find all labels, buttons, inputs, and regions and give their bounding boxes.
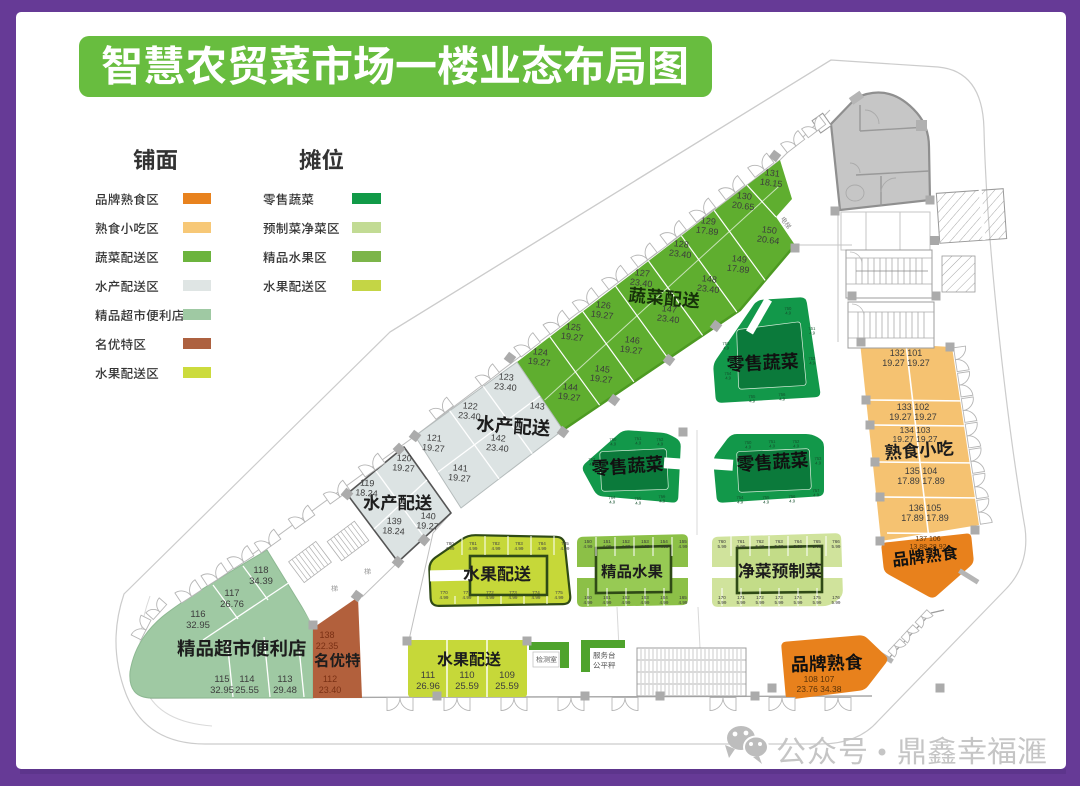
svg-text:5.99: 5.99 <box>794 544 803 549</box>
svg-text:4.99: 4.99 <box>463 595 472 600</box>
svg-text:4.99: 4.99 <box>486 595 495 600</box>
svg-text:4.99: 4.99 <box>679 600 688 605</box>
svg-text:114: 114 <box>239 674 254 685</box>
svg-text:5.99: 5.99 <box>832 544 841 549</box>
svg-text:4.9: 4.9 <box>723 345 730 350</box>
svg-text:4.99: 4.99 <box>603 600 612 605</box>
svg-text:108 107: 108 107 <box>804 674 835 684</box>
svg-text:4.9: 4.9 <box>609 499 616 504</box>
svg-text:19.27 19.27: 19.27 19.27 <box>889 412 937 422</box>
svg-text:34.39: 34.39 <box>249 576 273 587</box>
svg-text:4.99: 4.99 <box>622 544 631 549</box>
svg-text:5.99: 5.99 <box>813 600 822 605</box>
svg-text:112: 112 <box>323 674 337 684</box>
svg-text:110: 110 <box>459 670 474 681</box>
svg-text:17.89 17.89: 17.89 17.89 <box>897 476 945 486</box>
svg-text:23.40: 23.40 <box>458 410 481 422</box>
svg-text:115: 115 <box>214 674 229 685</box>
svg-text:26.96: 26.96 <box>416 681 440 692</box>
svg-text:135 104: 135 104 <box>905 466 938 476</box>
svg-text:25.55: 25.55 <box>235 685 259 696</box>
svg-text:17.89 17.89: 17.89 17.89 <box>901 513 949 523</box>
svg-text:111: 111 <box>421 670 435 681</box>
svg-text:4.99: 4.99 <box>660 544 669 549</box>
svg-text:4.99: 4.99 <box>532 595 541 600</box>
svg-text:4.9: 4.9 <box>779 396 786 401</box>
svg-text:4.99: 4.99 <box>469 546 478 551</box>
svg-text:4.9: 4.9 <box>785 310 792 315</box>
svg-text:4.99: 4.99 <box>555 595 564 600</box>
svg-text:26.76: 26.76 <box>220 599 244 610</box>
svg-text:4.99: 4.99 <box>679 544 688 549</box>
svg-text:4.99: 4.99 <box>492 546 501 551</box>
svg-text:5.99: 5.99 <box>737 544 746 549</box>
svg-text:4.9: 4.9 <box>659 498 666 503</box>
svg-text:4.99: 4.99 <box>584 600 593 605</box>
svg-text:4.99: 4.99 <box>603 544 612 549</box>
svg-text:4.9: 4.9 <box>657 441 664 446</box>
svg-text:4.99: 4.99 <box>561 546 570 551</box>
svg-text:132 101: 132 101 <box>890 348 923 358</box>
svg-text:4.9: 4.9 <box>725 375 732 380</box>
svg-text:117: 117 <box>224 588 239 599</box>
svg-text:5.99: 5.99 <box>794 600 803 605</box>
svg-text:19.27: 19.27 <box>448 472 471 484</box>
svg-text:4.9: 4.9 <box>749 398 756 403</box>
svg-text:4.9: 4.9 <box>745 444 752 449</box>
svg-text:5.99: 5.99 <box>718 600 727 605</box>
svg-text:5.99: 5.99 <box>813 544 822 549</box>
svg-text:23.76 34.38: 23.76 34.38 <box>797 684 842 694</box>
svg-text:19.27: 19.27 <box>392 462 415 474</box>
svg-text:133 102: 133 102 <box>897 402 930 412</box>
svg-text:19.27 19.27: 19.27 19.27 <box>893 434 938 444</box>
svg-text:5.99: 5.99 <box>775 600 784 605</box>
svg-text:5.99: 5.99 <box>832 600 841 605</box>
svg-text:23.40: 23.40 <box>486 442 509 454</box>
svg-text:5.99: 5.99 <box>756 544 765 549</box>
svg-text:5.99: 5.99 <box>718 544 727 549</box>
svg-text:4.99: 4.99 <box>440 595 449 600</box>
svg-text:22.35: 22.35 <box>316 641 339 651</box>
svg-text:4.9: 4.9 <box>635 440 642 445</box>
svg-text:5.99: 5.99 <box>737 600 746 605</box>
svg-text:25.59: 25.59 <box>495 681 519 692</box>
svg-text:4.9: 4.9 <box>809 360 816 365</box>
svg-text:4.99: 4.99 <box>515 546 524 551</box>
svg-text:4.9: 4.9 <box>737 499 744 504</box>
svg-text:19.27: 19.27 <box>422 442 445 454</box>
svg-text:116: 116 <box>190 609 205 620</box>
svg-text:4.9: 4.9 <box>789 498 796 503</box>
svg-text:4.99: 4.99 <box>584 544 593 549</box>
svg-text:143: 143 <box>529 400 545 411</box>
svg-text:138: 138 <box>319 630 334 640</box>
svg-text:4.9: 4.9 <box>769 443 776 448</box>
svg-text:4.99: 4.99 <box>538 546 547 551</box>
svg-text:5.99: 5.99 <box>775 544 784 549</box>
svg-text:29.48: 29.48 <box>273 685 297 696</box>
svg-text:109: 109 <box>499 670 515 681</box>
svg-text:4.9: 4.9 <box>610 441 617 446</box>
svg-text:113: 113 <box>277 674 292 685</box>
svg-text:19.27: 19.27 <box>416 520 439 532</box>
svg-text:4.9: 4.9 <box>635 500 642 505</box>
svg-text:4.9: 4.9 <box>809 330 816 335</box>
svg-text:4.99: 4.99 <box>641 544 650 549</box>
svg-text:4.99: 4.99 <box>509 595 518 600</box>
svg-text:4.9: 4.9 <box>815 460 822 465</box>
svg-text:5.99: 5.99 <box>756 600 765 605</box>
svg-text:18.24: 18.24 <box>355 487 378 499</box>
svg-text:4.99: 4.99 <box>660 600 669 605</box>
svg-text:4.9: 4.9 <box>793 443 800 448</box>
svg-text:136 105: 136 105 <box>909 503 942 513</box>
svg-text:19.27 19.27: 19.27 19.27 <box>882 358 930 368</box>
svg-text:4.9: 4.9 <box>763 499 770 504</box>
svg-text:4.99: 4.99 <box>622 600 631 605</box>
svg-text:118: 118 <box>253 565 268 576</box>
svg-text:18.24: 18.24 <box>382 525 405 537</box>
svg-text:32.95: 32.95 <box>186 620 210 631</box>
svg-text:32.95: 32.95 <box>210 685 234 696</box>
svg-text:4.9: 4.9 <box>813 492 820 497</box>
svg-text:25.59: 25.59 <box>455 681 479 692</box>
svg-text:23.40: 23.40 <box>494 381 517 393</box>
svg-text:137 106: 137 106 <box>915 536 940 543</box>
svg-text:4.99: 4.99 <box>446 546 455 551</box>
svg-text:4.99: 4.99 <box>641 600 650 605</box>
svg-text:23.40: 23.40 <box>319 685 342 695</box>
